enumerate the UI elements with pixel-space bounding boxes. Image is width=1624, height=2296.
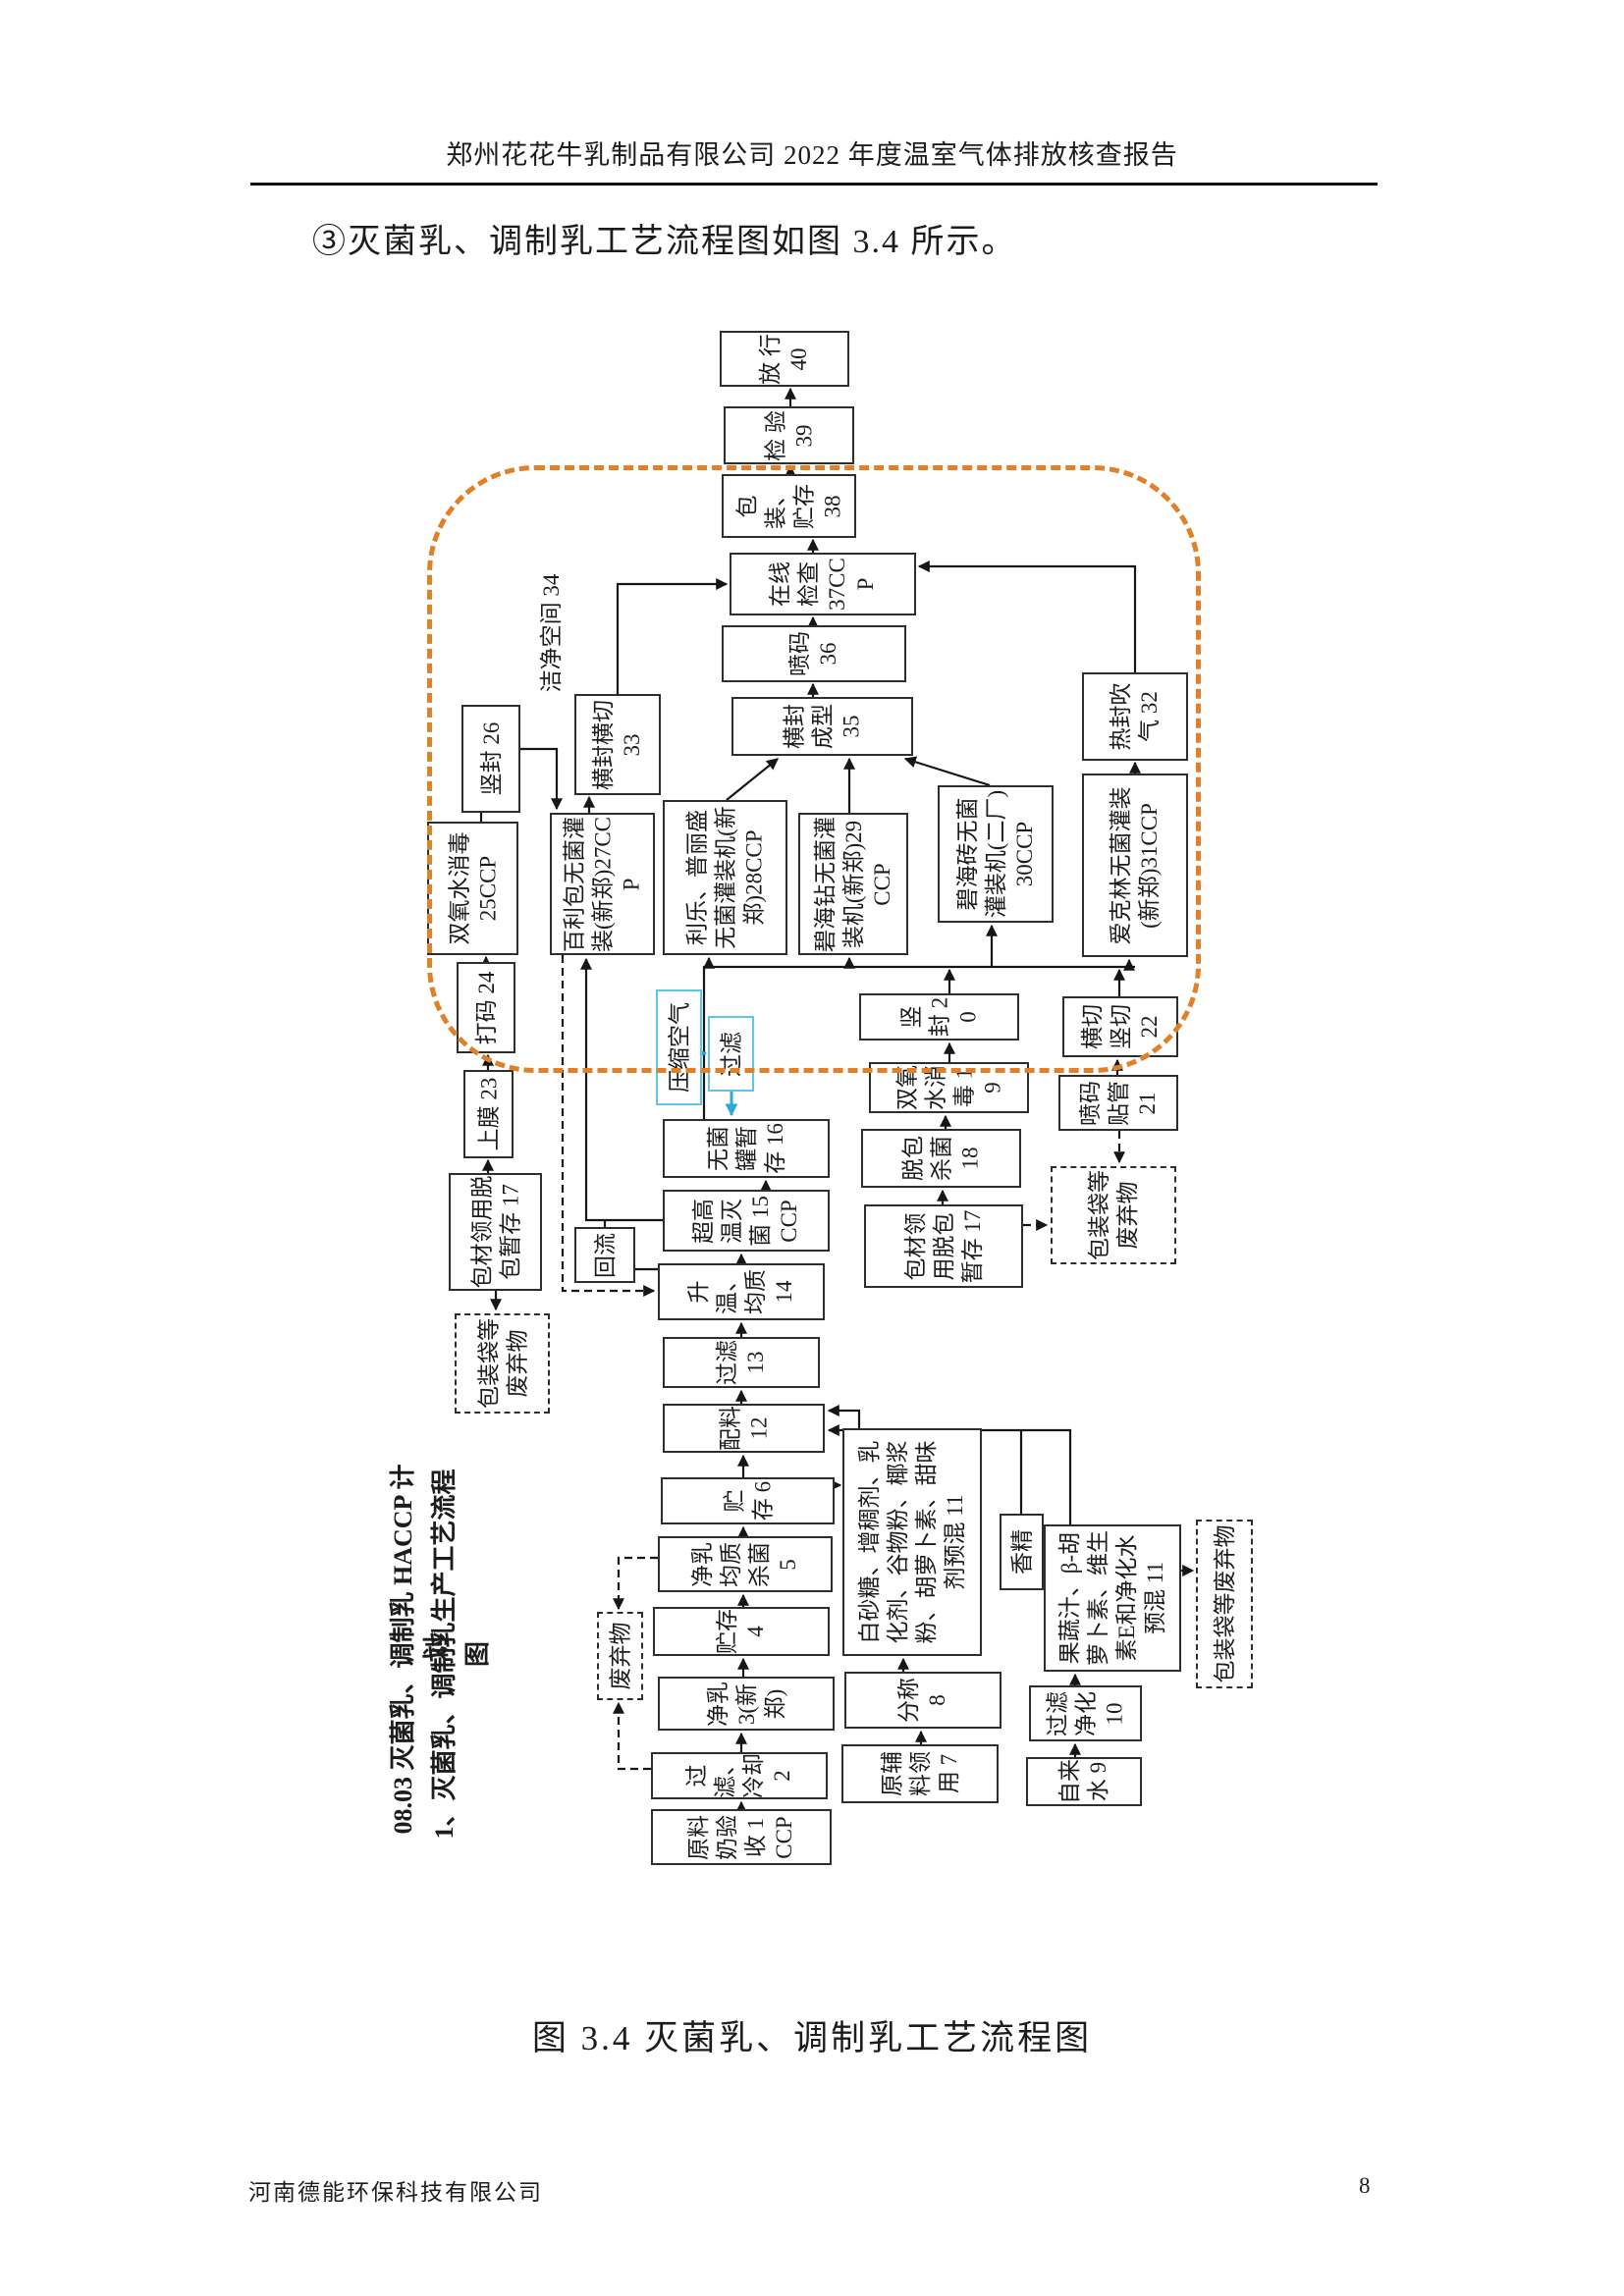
- node-label: 无菌罐暂存 16: [665, 1121, 828, 1176]
- node-label-text: 碧海砖无菌灌装机(二厂)30CCP: [953, 787, 1039, 921]
- node-dama-24: 打码 24: [457, 962, 515, 1053]
- node-label: 包材领用脱包暂存 17: [451, 1175, 540, 1289]
- document-page: 郑州花花牛乳制品有限公司 2022 年度温室气体排放核查报告 ③灭菌乳、调制乳工…: [0, 0, 1624, 2296]
- node-label: 脱包杀菌 18: [863, 1131, 1019, 1186]
- node-label-text: 在线检查 37CCP: [766, 555, 880, 614]
- node-zilaishui-9: 自来水 9: [1026, 1757, 1142, 1806]
- node-label-text: 过滤 13: [713, 1339, 770, 1386]
- node-label-text: 果蔬汁、β-胡萝卜素、维生素E和净化水预混 11: [1056, 1526, 1169, 1670]
- process-flow-diagram: 放 行 40检 验 39包装、贮存 38在线检查 37CCP喷码 36横封成型 …: [0, 0, 1624, 2296]
- node-jianyan-39: 检 验 39: [724, 406, 854, 464]
- page-number: 8: [1359, 2173, 1371, 2199]
- node-yuanfuliao-7: 原辅料领用 7: [841, 1744, 999, 1803]
- node-bihaizhuan-30: 碧海砖无菌灌装机(二厂)30CCP: [938, 785, 1054, 923]
- node-label: 竖封 26: [463, 707, 518, 811]
- node-shufeng-20: 竖封 20: [859, 993, 1019, 1041]
- node-label-text: 检 验 39: [761, 408, 818, 462]
- node-label-text: 压缩空气: [665, 1002, 693, 1093]
- node-wujunguan-16: 无菌罐暂存 16: [663, 1119, 830, 1178]
- node-label: 打码 24: [459, 964, 514, 1051]
- node-xiangjing: 香精: [1000, 1514, 1044, 1590]
- node-label-text: 包装、贮存 38: [732, 476, 846, 536]
- node-shufeng-26: 竖封 26: [461, 705, 520, 813]
- node-label: 竖封 20: [861, 995, 1017, 1039]
- node-label: 过滤: [710, 1018, 752, 1090]
- node-label-text: 贮存 4: [713, 1609, 770, 1654]
- node-shangmo-23: 上膜 23: [463, 1070, 514, 1158]
- node-label-text: 废弃物: [606, 1623, 634, 1690]
- node-label-text: 包材领用脱包暂存 17: [901, 1206, 987, 1286]
- node-label-text: 净乳均质杀菌 5: [688, 1538, 802, 1590]
- node-baocai-17-left: 包材领用脱包暂存 17: [449, 1173, 542, 1291]
- node-label: 净乳均质杀菌 5: [660, 1538, 831, 1590]
- node-label: 横封成型 35: [733, 699, 911, 754]
- node-label: 包装袋等废弃物: [1053, 1168, 1174, 1262]
- node-label-text: 白砂糖、增稠剂、乳化剂、谷物粉、椰浆粉、胡萝卜素、甜味剂预混 11: [855, 1430, 969, 1654]
- node-label: 包装袋等废弃物: [1198, 1522, 1251, 1686]
- node-aikelin-31: 爱克林无菌灌装(新郑)31CCP: [1082, 774, 1188, 957]
- node-label: 喷码贴管 21: [1060, 1077, 1176, 1129]
- node-label-text: 竖封 26: [477, 722, 506, 796]
- node-label: 贮存 4: [655, 1609, 828, 1654]
- node-label: 百利包无菌灌装(新郑)27CCP: [552, 815, 653, 953]
- node-label-text: 香精: [1007, 1529, 1036, 1575]
- node-label: 放 行 40: [722, 333, 847, 385]
- node-penma-tieguan-21: 喷码贴管 21: [1058, 1075, 1178, 1131]
- node-hengfeng-hengqie-33: 横封横切 33: [574, 694, 661, 795]
- node-label-text: 包材领用脱包暂存 17: [467, 1175, 524, 1289]
- node-tuobao-shajun-18: 脱包杀菌 18: [861, 1129, 1021, 1188]
- node-label-text: 脱包杀菌 18: [898, 1131, 984, 1186]
- node-label-text: 净乳 3(新郑): [704, 1679, 789, 1729]
- node-label: 压缩空气: [658, 991, 700, 1103]
- node-label-text: 碧海钻无菌灌装机(新郑)29CCP: [811, 815, 896, 953]
- node-lile-pulisheng-28: 利乐、普丽盛无菌灌装机(新郑)28CCP: [663, 800, 787, 955]
- node-huiliu: 回流: [574, 1227, 635, 1283]
- node-label-text: 热封吹气 32: [1107, 674, 1164, 759]
- node-guolv-lengque-2: 过滤、冷却 2: [651, 1752, 828, 1799]
- node-label: 利乐、普丽盛无菌灌装机(新郑)28CCP: [665, 802, 785, 953]
- node-label: 1、灭菌乳、调制乳生产工艺流程图: [444, 1467, 479, 1841]
- node-refeng-chuiqi-32: 热封吹气 32: [1082, 672, 1188, 761]
- node-label-text: 喷码 36: [785, 627, 842, 680]
- node-label-text: 横封成型 35: [780, 699, 865, 754]
- node-zaixian-jiancha-37: 在线检查 37CCP: [730, 553, 916, 615]
- node-label-text: 包装袋等废弃物: [474, 1315, 531, 1412]
- node-label: 包材领用脱包暂存 17: [866, 1206, 1021, 1286]
- figure-caption: 图 3.4 灭菌乳、调制乳工艺流程图: [0, 2010, 1624, 2060]
- node-label: 喷码 36: [724, 627, 904, 680]
- node-label-text: 百利包无菌灌装(新郑)27CCP: [560, 815, 645, 953]
- node-shuangyangshui-25: 双氧水消毒 25CCP: [427, 822, 518, 955]
- node-label-text: 自来水 9: [1056, 1759, 1112, 1804]
- node-yuhun-11b: 果蔬汁、β-胡萝卜素、维生素E和净化水预混 11: [1044, 1524, 1181, 1672]
- node-jingru-junzhi-5: 净乳均质杀菌 5: [658, 1536, 833, 1592]
- node-chaogaowen-15: 超高温灭菌 15CCP: [663, 1190, 830, 1252]
- node-label-text: 放 行 40: [756, 333, 813, 385]
- node-label: 包装、贮存 38: [724, 476, 854, 536]
- node-label: 回流: [576, 1229, 633, 1281]
- node-bihaizuan-29: 碧海钻无菌灌装机(新郑)29CCP: [798, 813, 908, 955]
- node-label-text: 分称 8: [894, 1674, 951, 1727]
- node-label-text: 原料奶验收 1CCP: [684, 1811, 798, 1863]
- node-waste-right: 包装袋等废弃物: [1051, 1166, 1176, 1264]
- node-label: 横封横切 33: [576, 696, 659, 793]
- node-guolv-blue: 过滤: [708, 1016, 754, 1092]
- node-label: 爱克林无菌灌装(新郑)31CCP: [1084, 775, 1186, 955]
- node-fencheng-8: 分称 8: [844, 1672, 1001, 1729]
- node-label-flow-title: 1、灭菌乳、调制乳生产工艺流程图: [442, 1465, 481, 1842]
- node-label: 原辅料领用 7: [843, 1746, 997, 1801]
- node-penma-36: 喷码 36: [722, 625, 906, 682]
- node-label: 过滤 13: [665, 1339, 818, 1386]
- node-guolv-jinghua-10: 过滤净化 10: [1029, 1685, 1142, 1741]
- node-label: 洁净空间 34: [532, 561, 569, 705]
- node-label-text: 爱克林无菌灌装(新郑)31CCP: [1107, 775, 1164, 955]
- node-label-text: 喷码贴管 21: [1076, 1077, 1162, 1129]
- node-label: 白砂糖、增稠剂、乳化剂、谷物粉、椰浆粉、胡萝卜素、甜味剂预混 11: [844, 1430, 980, 1654]
- node-label: 配料 12: [665, 1406, 823, 1451]
- node-hengfeng-chengxing-35: 横封成型 35: [731, 697, 913, 756]
- node-label: 自来水 9: [1028, 1759, 1140, 1804]
- node-label: 贮存 6: [663, 1479, 833, 1522]
- node-label-text: 回流: [591, 1233, 620, 1278]
- node-label-text: 贮存 6: [720, 1479, 777, 1522]
- node-waste-mid: 废弃物: [597, 1612, 643, 1700]
- node-fangxing-40: 放 行 40: [720, 331, 849, 387]
- node-label: 升温、均质 14: [660, 1265, 823, 1318]
- node-label: 原料奶验收 1CCP: [653, 1811, 830, 1863]
- node-label: 过滤、冷却 2: [653, 1754, 826, 1797]
- node-label-text: 过滤净化 10: [1043, 1687, 1128, 1739]
- node-label: 热封吹气 32: [1084, 674, 1186, 759]
- node-label-text: 原辅料领用 7: [878, 1746, 963, 1801]
- node-yasuo-kongqi: 压缩空气: [656, 989, 702, 1105]
- node-label: 果蔬汁、β-胡萝卜素、维生素E和净化水预混 11: [1046, 1526, 1179, 1670]
- node-shuangyangshui-19: 双氧水消毒 19: [869, 1062, 1029, 1113]
- node-label-text: 打码 24: [472, 971, 501, 1044]
- node-label: 香精: [1001, 1516, 1042, 1588]
- node-label-text: 无菌罐暂存 16: [704, 1121, 789, 1176]
- footer-company: 河南德能环保科技有限公司: [248, 2173, 543, 2207]
- node-label-text: 1、灭菌乳、调制乳生产工艺流程图: [428, 1467, 495, 1841]
- node-label: 超高温灭菌 15CCP: [665, 1192, 828, 1250]
- node-label: 包装袋等废弃物: [457, 1315, 548, 1412]
- node-label-text: 配料 12: [716, 1406, 773, 1451]
- node-waste-left: 包装袋等废弃物: [455, 1313, 550, 1414]
- node-label-text: 双氧水消毒 19: [893, 1064, 1006, 1111]
- node-label-text: 竖封 20: [896, 995, 982, 1039]
- node-waste-right-2: 包装袋等废弃物: [1196, 1520, 1253, 1688]
- node-yuhun-11a: 白砂糖、增稠剂、乳化剂、谷物粉、椰浆粉、胡萝卜素、甜味剂预混 11: [842, 1428, 982, 1656]
- node-label: 检 验 39: [726, 408, 852, 462]
- node-jingru-3: 净乳 3(新郑): [658, 1677, 835, 1731]
- node-zhucun-6: 贮存 6: [661, 1477, 835, 1524]
- node-baocai-17-right: 包材领用脱包暂存 17: [864, 1204, 1023, 1288]
- node-label-text: 升温、均质 14: [684, 1265, 798, 1318]
- node-label: 碧海钻无菌灌装机(新郑)29CCP: [800, 815, 906, 953]
- node-label-text: 洁净空间 34: [537, 574, 566, 693]
- node-shengwen-junzhi-14: 升温、均质 14: [658, 1263, 825, 1320]
- node-label: 净乳 3(新郑): [660, 1679, 833, 1729]
- node-label-text: 包装袋等废弃物: [1211, 1525, 1239, 1683]
- node-label: 碧海砖无菌灌装机(二厂)30CCP: [940, 787, 1052, 921]
- node-label: 过滤净化 10: [1031, 1687, 1140, 1739]
- node-guolv-13: 过滤 13: [663, 1337, 820, 1388]
- node-bailibao-27: 百利包无菌灌装(新郑)27CCP: [550, 813, 655, 955]
- node-label: 在线检查 37CCP: [731, 555, 914, 614]
- node-label: 双氧水消毒 19: [871, 1064, 1027, 1111]
- node-label-text: 包装袋等废弃物: [1085, 1168, 1142, 1262]
- node-label-clean-room-34: 洁净空间 34: [530, 560, 571, 707]
- node-label: 横切竖切 22: [1064, 998, 1176, 1055]
- node-label-text: 过滤、冷却 2: [682, 1753, 796, 1798]
- node-label-text: 横切竖切 22: [1078, 998, 1164, 1055]
- node-peiliao-12: 配料 12: [663, 1404, 825, 1453]
- node-label-text: 过滤: [717, 1032, 745, 1077]
- node-hengqie-shuqie-22: 横切竖切 22: [1062, 996, 1178, 1057]
- node-label: 分称 8: [846, 1674, 1000, 1727]
- node-baozhuang-zhucun-38: 包装、贮存 38: [722, 474, 856, 538]
- node-label: 废弃物: [599, 1614, 641, 1698]
- node-label: 上膜 23: [465, 1072, 512, 1156]
- node-label: 双氧水消毒 25CCP: [429, 824, 516, 953]
- node-label-text: 横封横切 33: [589, 696, 646, 793]
- node-zhucun-4: 贮存 4: [653, 1607, 830, 1656]
- node-label-text: 利乐、普丽盛无菌灌装机(新郑)28CCP: [682, 802, 768, 953]
- node-yuanliaonai-1: 原料奶验收 1CCP: [651, 1809, 832, 1865]
- node-label-text: 上膜 23: [474, 1078, 503, 1151]
- node-label-text: 超高温灭菌 15CCP: [689, 1192, 803, 1250]
- node-label-text: 双氧水消毒 25CCP: [445, 824, 502, 953]
